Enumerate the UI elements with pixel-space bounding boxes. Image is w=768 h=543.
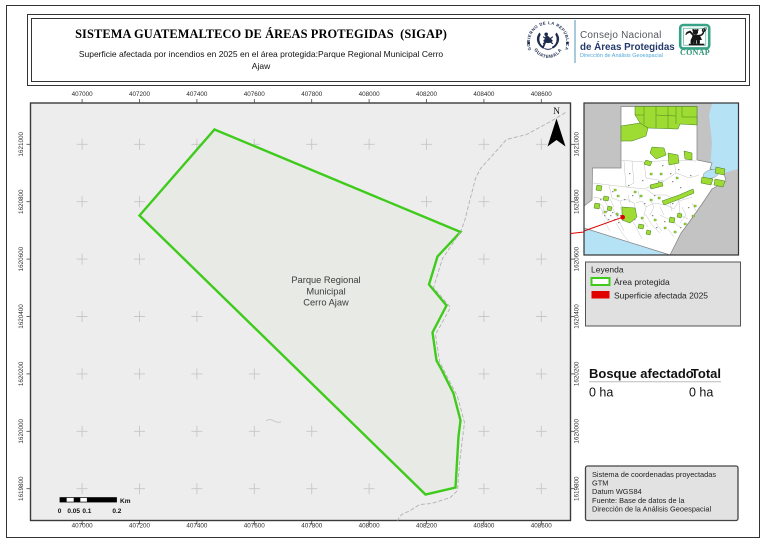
svg-text:Dirección de la Análisis Geoes: Dirección de la Análisis Geoespacial: [592, 504, 711, 513]
svg-text:407600: 407600: [244, 91, 266, 98]
svg-text:408600: 408600: [531, 523, 553, 530]
svg-text:Total: Total: [691, 366, 721, 381]
svg-text:407400: 407400: [186, 91, 208, 98]
svg-text:407800: 407800: [301, 523, 323, 530]
svg-text:1619800: 1619800: [574, 476, 581, 501]
svg-text:407000: 407000: [72, 91, 94, 98]
svg-text:407000: 407000: [72, 523, 94, 530]
svg-text:407200: 407200: [129, 523, 151, 530]
svg-text:1620600: 1620600: [18, 246, 25, 271]
svg-text:407800: 407800: [301, 91, 323, 98]
svg-text:Parque Regional: Parque Regional: [291, 275, 360, 285]
svg-text:Leyenda: Leyenda: [591, 265, 624, 275]
svg-text:1620800: 1620800: [18, 189, 25, 214]
svg-text:1620600: 1620600: [574, 246, 581, 271]
svg-text:Área protegida: Área protegida: [614, 277, 670, 287]
svg-text:1621000: 1621000: [18, 132, 25, 157]
svg-text:407200: 407200: [129, 91, 151, 98]
svg-text:N: N: [553, 107, 560, 117]
svg-text:0.1: 0.1: [82, 508, 91, 515]
svg-text:Km: Km: [120, 498, 131, 505]
svg-text:407600: 407600: [244, 523, 266, 530]
svg-text:1620800: 1620800: [574, 189, 581, 214]
svg-text:1619800: 1619800: [18, 476, 25, 501]
svg-text:0 ha: 0 ha: [689, 386, 713, 400]
svg-text:Superficie afectada 2025: Superficie afectada 2025: [614, 291, 708, 301]
svg-text:408400: 408400: [473, 523, 495, 530]
svg-text:0: 0: [58, 508, 62, 515]
svg-text:1620400: 1620400: [18, 304, 25, 329]
svg-text:1620000: 1620000: [574, 419, 581, 444]
svg-text:408400: 408400: [473, 91, 495, 98]
svg-text:Cerro Ajaw: Cerro Ajaw: [303, 298, 349, 308]
svg-text:1621000: 1621000: [574, 132, 581, 157]
svg-text:Bosque afectado: Bosque afectado: [589, 366, 694, 381]
svg-text:1620200: 1620200: [18, 361, 25, 386]
svg-text:0 ha: 0 ha: [589, 386, 613, 400]
svg-text:408000: 408000: [359, 91, 381, 98]
svg-text:1620200: 1620200: [574, 361, 581, 386]
svg-text:408200: 408200: [416, 91, 438, 98]
svg-text:407400: 407400: [186, 523, 208, 530]
svg-text:408000: 408000: [359, 523, 381, 530]
svg-text:Sistema de coordenadas proyect: Sistema de coordenadas proyectadas: [592, 470, 716, 479]
svg-text:1620400: 1620400: [574, 304, 581, 329]
svg-text:0.2: 0.2: [112, 508, 121, 515]
svg-text:408600: 408600: [531, 91, 553, 98]
svg-text:Municipal: Municipal: [306, 287, 345, 297]
svg-text:408200: 408200: [416, 523, 438, 530]
svg-text:1620000: 1620000: [18, 419, 25, 444]
svg-text:0.05: 0.05: [67, 508, 80, 515]
